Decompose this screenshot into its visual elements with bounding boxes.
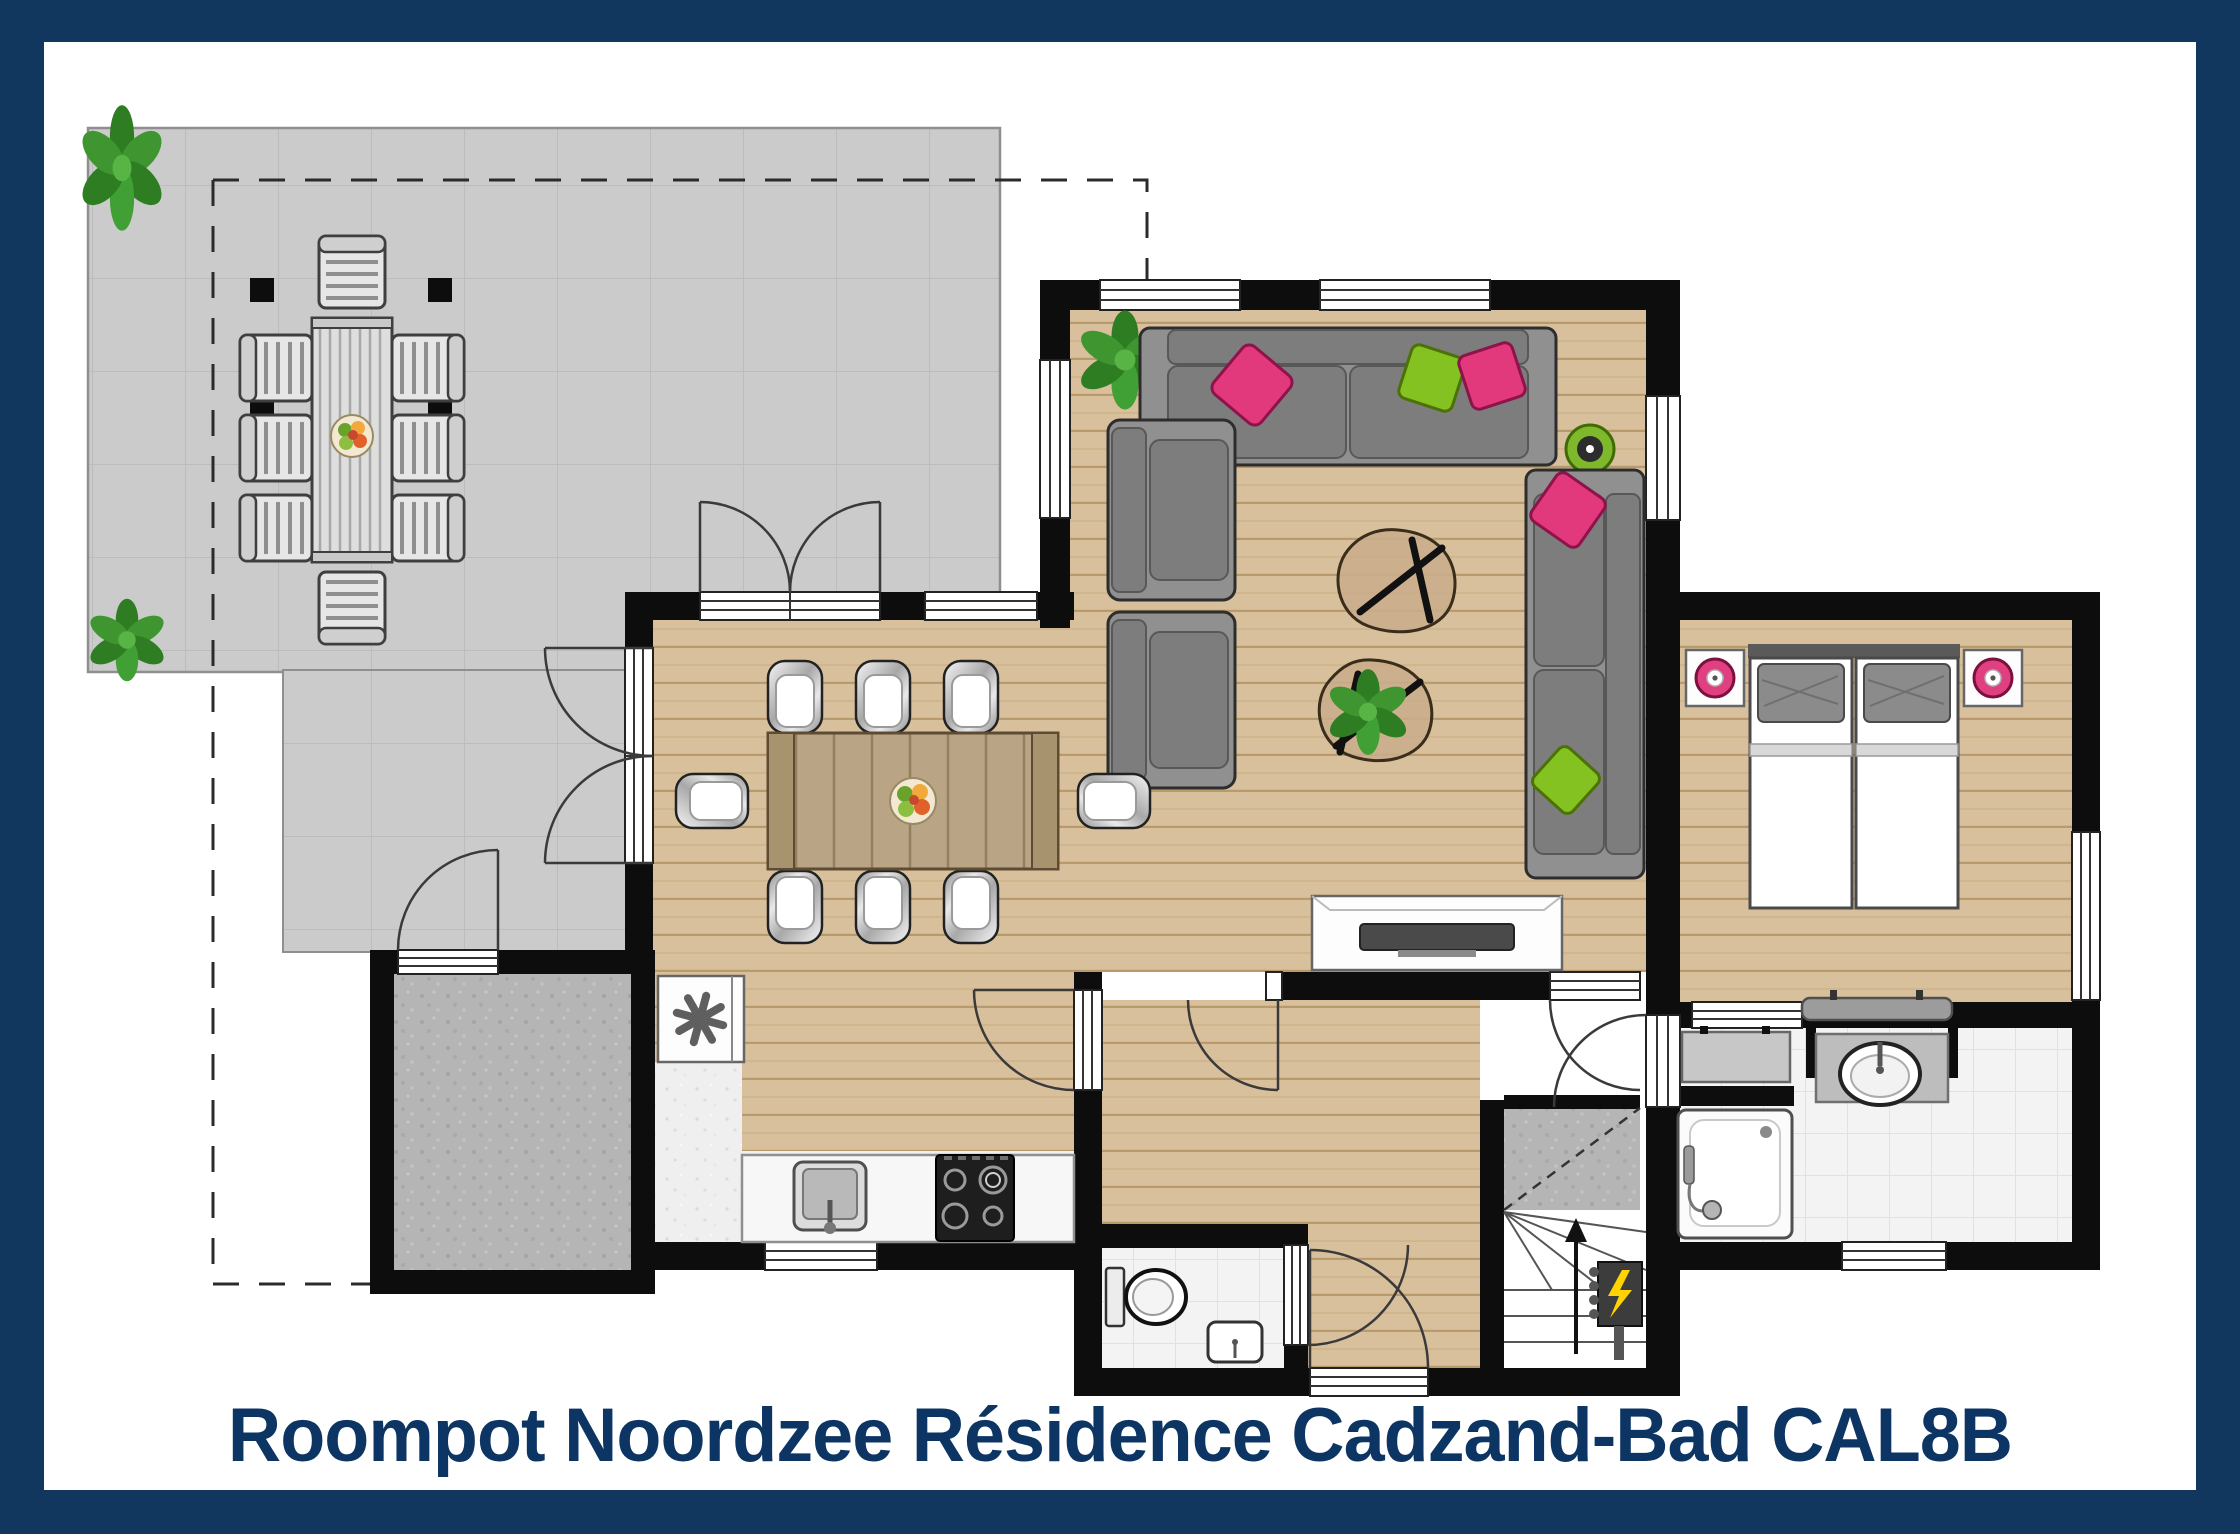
window-icon [1646,396,1680,520]
fruit-bowl-icon [331,415,373,457]
kitchen-floor [655,1062,742,1242]
floor-plan-svg [0,0,2240,1534]
dining-chair-icon [676,774,748,828]
nightstand-icon [1686,650,1744,706]
armchair-icon [1108,612,1235,788]
plan-title: Roompot Noordzee Résidence Cadzand-Bad C… [34,1392,2207,1484]
terrace-floor-lower [283,670,653,952]
outdoor-chair-icon [240,335,312,401]
tv-icon [1360,924,1514,950]
dining-table-icon [768,733,1058,869]
hand-basin-icon [1208,1322,1262,1362]
dining-chair-icon [768,871,822,943]
toilet-icon [1106,1268,1186,1326]
outdoor-chair-icon [392,495,464,561]
dining-chair-icon [1078,774,1150,828]
freezer-icon [658,976,744,1062]
armchair-icon [1108,420,1235,600]
window-icon [1100,280,1240,310]
washbasin-icon [1816,1034,1948,1105]
dining-chair-icon [856,871,910,943]
dining-chair-icon [944,871,998,943]
outdoor-chair-icon [319,236,385,308]
dining-chair-icon [768,661,822,733]
kitchen-counter [742,1155,1074,1242]
coffee-table-icon [1338,530,1455,632]
corner-sofa-icon [1526,470,1644,878]
side-table-icon [1566,425,1614,473]
window-icon [1842,1242,1946,1270]
outdoor-chair-icon [240,415,312,481]
fruit-bowl-icon [890,778,936,824]
coffee-table-icon [1319,660,1432,761]
gas-hob-icon [936,1155,1014,1241]
bathroom-cabinet-icon [1682,1026,1790,1082]
storage-floor [394,974,631,1270]
outdoor-chair-icon [240,495,312,561]
window-icon [1040,360,1070,518]
bed-icon [1856,658,1958,908]
terrace-floor [88,128,1000,672]
outdoor-chair-icon [392,415,464,481]
window-icon [1320,280,1490,310]
tv-sideboard-icon [1312,896,1562,970]
window-icon [2072,832,2100,1000]
shower-icon [1678,1110,1792,1238]
interior-door-icon [1692,1002,1802,1028]
bedside-lamp-icon [1696,659,1734,697]
window-icon [765,1242,877,1270]
headboard [1748,644,1960,658]
nightstand-icon [1964,650,2022,706]
outdoor-chair-icon [392,335,464,401]
kitchen-sink-icon [794,1162,866,1234]
outdoor-chair-icon [319,572,385,644]
dining-chair-icon [944,661,998,733]
bed-icon [1750,658,1852,908]
page: { "title": { "caption": "Roompot Noordze… [0,0,2240,1534]
window-icon [925,592,1037,620]
dining-chair-icon [856,661,910,733]
bedside-lamp-icon [1974,659,2012,697]
